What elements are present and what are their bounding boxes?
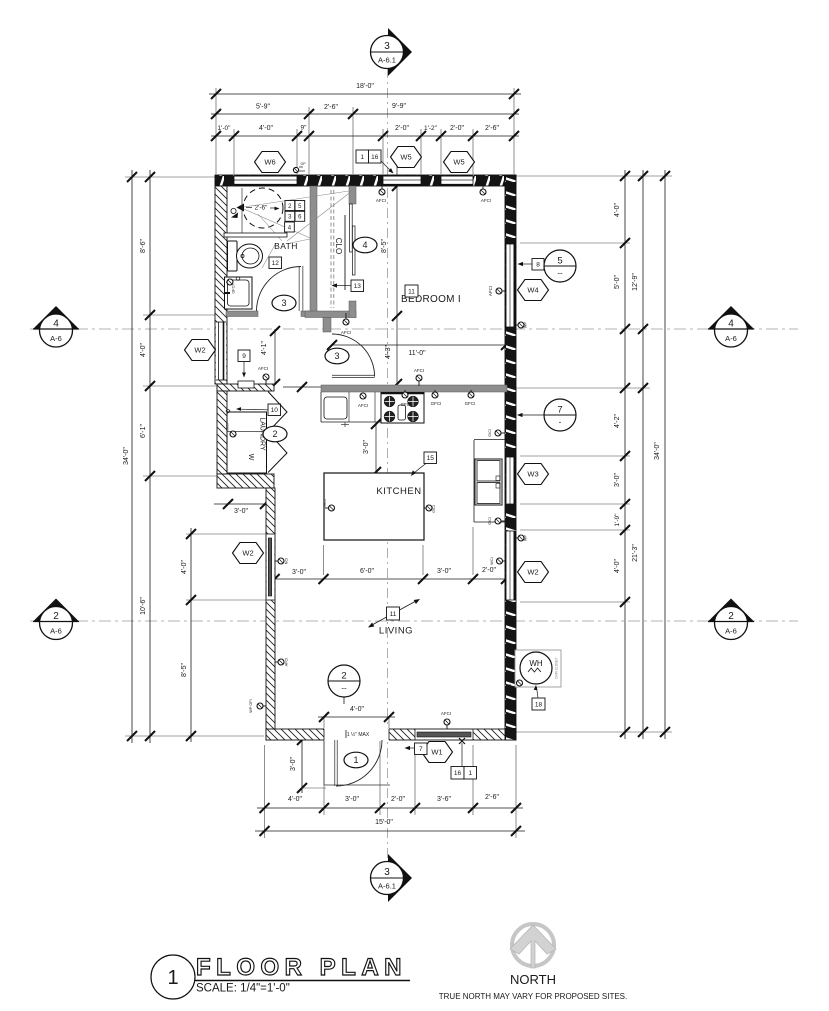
svg-text:4'-0": 4'-0" (259, 125, 273, 132)
svg-text:W2: W2 (527, 568, 538, 577)
svg-text:12: 12 (272, 260, 280, 267)
svg-text:4'-2": 4'-2" (614, 414, 621, 428)
svg-text:34'-0": 34'-0" (654, 442, 661, 460)
svg-text:W2: W2 (194, 346, 205, 355)
svg-text:16: 16 (371, 154, 379, 161)
svg-text:WCI: WCI (490, 557, 494, 564)
svg-text:1'-2": 1'-2" (424, 125, 438, 132)
svg-text:WP: WP (524, 534, 528, 541)
svg-text:2'-0": 2'-0" (482, 567, 496, 574)
svg-text:WP: WP (524, 321, 528, 328)
svg-text:4'-0": 4'-0" (288, 796, 302, 803)
svg-text:W1: W1 (431, 748, 442, 757)
svg-text:7: 7 (557, 405, 562, 416)
svg-text:1: 1 (468, 770, 472, 777)
svg-text:LIVING: LIVING (379, 626, 413, 637)
svg-text:11: 11 (390, 611, 397, 618)
svg-text:AFCI: AFCI (258, 366, 268, 371)
svg-text:2'-6": 2'-6" (324, 104, 338, 111)
svg-text:4'-3": 4'-3" (385, 345, 392, 359)
svg-text:16: 16 (454, 770, 462, 777)
svg-text:5: 5 (557, 256, 562, 267)
svg-text:-: - (559, 418, 562, 427)
svg-text:BATH: BATH (274, 241, 298, 251)
svg-text:GICI: GICI (226, 423, 230, 431)
svg-text:2: 2 (341, 671, 346, 682)
svg-text:GICI: GICI (432, 505, 436, 513)
svg-text:4: 4 (362, 240, 367, 250)
svg-text:8'-6": 8'-6" (140, 239, 147, 253)
svg-text:2'-0": 2'-0" (391, 796, 405, 803)
svg-text:4'-0": 4'-0" (614, 203, 621, 217)
svg-text:2: 2 (53, 611, 59, 622)
svg-text:2'-6": 2'-6" (485, 794, 499, 801)
svg-text:3: 3 (281, 298, 286, 308)
svg-text:GICI: GICI (488, 517, 492, 525)
svg-text:A-6.1: A-6.1 (378, 56, 396, 65)
svg-text:3'-0": 3'-0" (363, 440, 370, 454)
svg-text:3'-0": 3'-0" (437, 568, 451, 575)
svg-text:1 ½" MAX: 1 ½" MAX (347, 731, 370, 738)
svg-text:3: 3 (384, 41, 390, 52)
svg-text:8: 8 (536, 262, 540, 269)
svg-text:1: 1 (353, 755, 358, 765)
svg-text:18: 18 (535, 701, 543, 708)
svg-text:2'-0": 2'-0" (450, 125, 464, 132)
svg-text:WH: WH (529, 659, 543, 668)
svg-text:SCALE: 1/4"=1'-0": SCALE: 1/4"=1'-0" (196, 983, 290, 995)
svg-text:4: 4 (53, 319, 59, 330)
svg-text:7: 7 (419, 746, 423, 753)
svg-text:AFCI: AFCI (481, 198, 491, 203)
svg-text:W5: W5 (453, 158, 464, 167)
svg-text:9'-9": 9'-9" (392, 103, 406, 110)
svg-text:15'-0": 15'-0" (375, 819, 393, 826)
svg-text:WP GFI: WP GFI (249, 699, 253, 712)
svg-text:KITCHEN: KITCHEN (376, 486, 421, 497)
svg-text:WP GFI: WP GFI (509, 676, 513, 689)
svg-text:A-6: A-6 (50, 334, 62, 343)
svg-text:3'-0": 3'-0" (345, 796, 359, 803)
svg-text:GFCI: GFCI (401, 402, 412, 407)
svg-text:GICI: GICI (488, 429, 492, 437)
svg-text:W2: W2 (242, 549, 253, 558)
svg-text:11'-0": 11'-0" (408, 350, 426, 357)
svg-text:12'-9": 12'-9" (632, 273, 639, 291)
svg-text:AFCI: AFCI (341, 330, 351, 335)
svg-text:3'-0": 3'-0" (290, 757, 297, 771)
svg-text:9": 9" (301, 125, 308, 132)
svg-text:1'-0": 1'-0" (218, 125, 232, 132)
svg-text:18'-0": 18'-0" (356, 83, 374, 90)
svg-text:10'-6": 10'-6" (140, 597, 147, 615)
svg-text:13: 13 (354, 283, 362, 290)
svg-text:3: 3 (334, 351, 339, 361)
svg-text:3'-0": 3'-0" (234, 508, 248, 515)
svg-text:TRUE NORTH MAY VARY FOR PROPOS: TRUE NORTH MAY VARY FOR PROPOSED SITES. (439, 992, 627, 1001)
svg-text:5'-9": 5'-9" (256, 104, 270, 111)
svg-text:--: -- (557, 269, 563, 278)
svg-text:OP: OP (300, 162, 306, 166)
svg-text:2: 2 (728, 611, 734, 622)
svg-text:5'-0": 5'-0" (614, 275, 621, 289)
svg-text:AFCI: AFCI (488, 286, 493, 296)
svg-text:2: 2 (272, 429, 277, 439)
svg-text:6'-1": 6'-1" (140, 424, 147, 438)
svg-text:NORTH: NORTH (510, 972, 556, 987)
svg-text:AFCI: AFCI (358, 403, 368, 408)
svg-text:GFCI: GFCI (232, 284, 236, 293)
svg-text:1'-9": 1'-9" (614, 513, 621, 527)
svg-text:W5: W5 (400, 153, 411, 162)
svg-text:3'-6": 3'-6" (437, 796, 451, 803)
svg-text:34'-0": 34'-0" (123, 447, 130, 465)
svg-text:15: 15 (427, 455, 435, 462)
svg-text:W: W (247, 454, 254, 461)
svg-text:4'-0": 4'-0" (350, 706, 364, 713)
svg-text:W4: W4 (527, 286, 538, 295)
svg-text:AFCI: AFCI (285, 658, 289, 667)
svg-text:--: -- (341, 684, 347, 693)
svg-text:CLO: CLO (334, 238, 343, 254)
svg-text:A-6: A-6 (50, 627, 62, 636)
svg-text:DHW CLOSET: DHW CLOSET (555, 657, 559, 678)
svg-text:GFCI: GFCI (431, 401, 442, 406)
svg-text:A-6: A-6 (725, 334, 737, 343)
svg-text:8'-5": 8'-5" (181, 663, 188, 677)
svg-text:4'-0": 4'-0" (140, 343, 147, 357)
svg-text:GFCI: GFCI (465, 401, 476, 406)
svg-text:1: 1 (167, 967, 178, 989)
svg-text:GICI: GICI (323, 499, 327, 507)
svg-text:AFCI: AFCI (376, 198, 386, 203)
svg-text:2'-0": 2'-0" (395, 125, 409, 132)
svg-text:3'-0": 3'-0" (292, 569, 306, 576)
svg-text:W3: W3 (527, 470, 538, 479)
svg-text:21'-3": 21'-3" (632, 544, 639, 562)
svg-text:10: 10 (271, 407, 279, 414)
svg-text:FLOOR PLAN: FLOOR PLAN (196, 954, 407, 981)
svg-text:4'-0": 4'-0" (614, 559, 621, 573)
svg-text:4'-0": 4'-0" (181, 560, 188, 574)
svg-text:2'-6": 2'-6" (255, 205, 269, 212)
svg-text:A-6.1: A-6.1 (378, 882, 396, 891)
svg-text:3: 3 (384, 867, 390, 878)
svg-text:1: 1 (360, 154, 364, 161)
svg-text:4'-1": 4'-1" (261, 341, 268, 355)
svg-text:11: 11 (408, 288, 415, 295)
svg-text:3'-0": 3'-0" (614, 473, 621, 487)
svg-text:8'-5": 8'-5" (381, 239, 388, 253)
svg-text:W6: W6 (264, 158, 275, 167)
svg-text:AFCI: AFCI (441, 711, 451, 716)
svg-text:9: 9 (242, 353, 246, 360)
svg-text:2'-6": 2'-6" (485, 125, 499, 132)
svg-text:4: 4 (728, 319, 734, 330)
svg-text:A-6: A-6 (725, 627, 737, 636)
svg-text:AFCI: AFCI (414, 368, 424, 373)
svg-text:NCI: NCI (285, 558, 289, 565)
svg-text:6'-0": 6'-0" (360, 568, 374, 575)
